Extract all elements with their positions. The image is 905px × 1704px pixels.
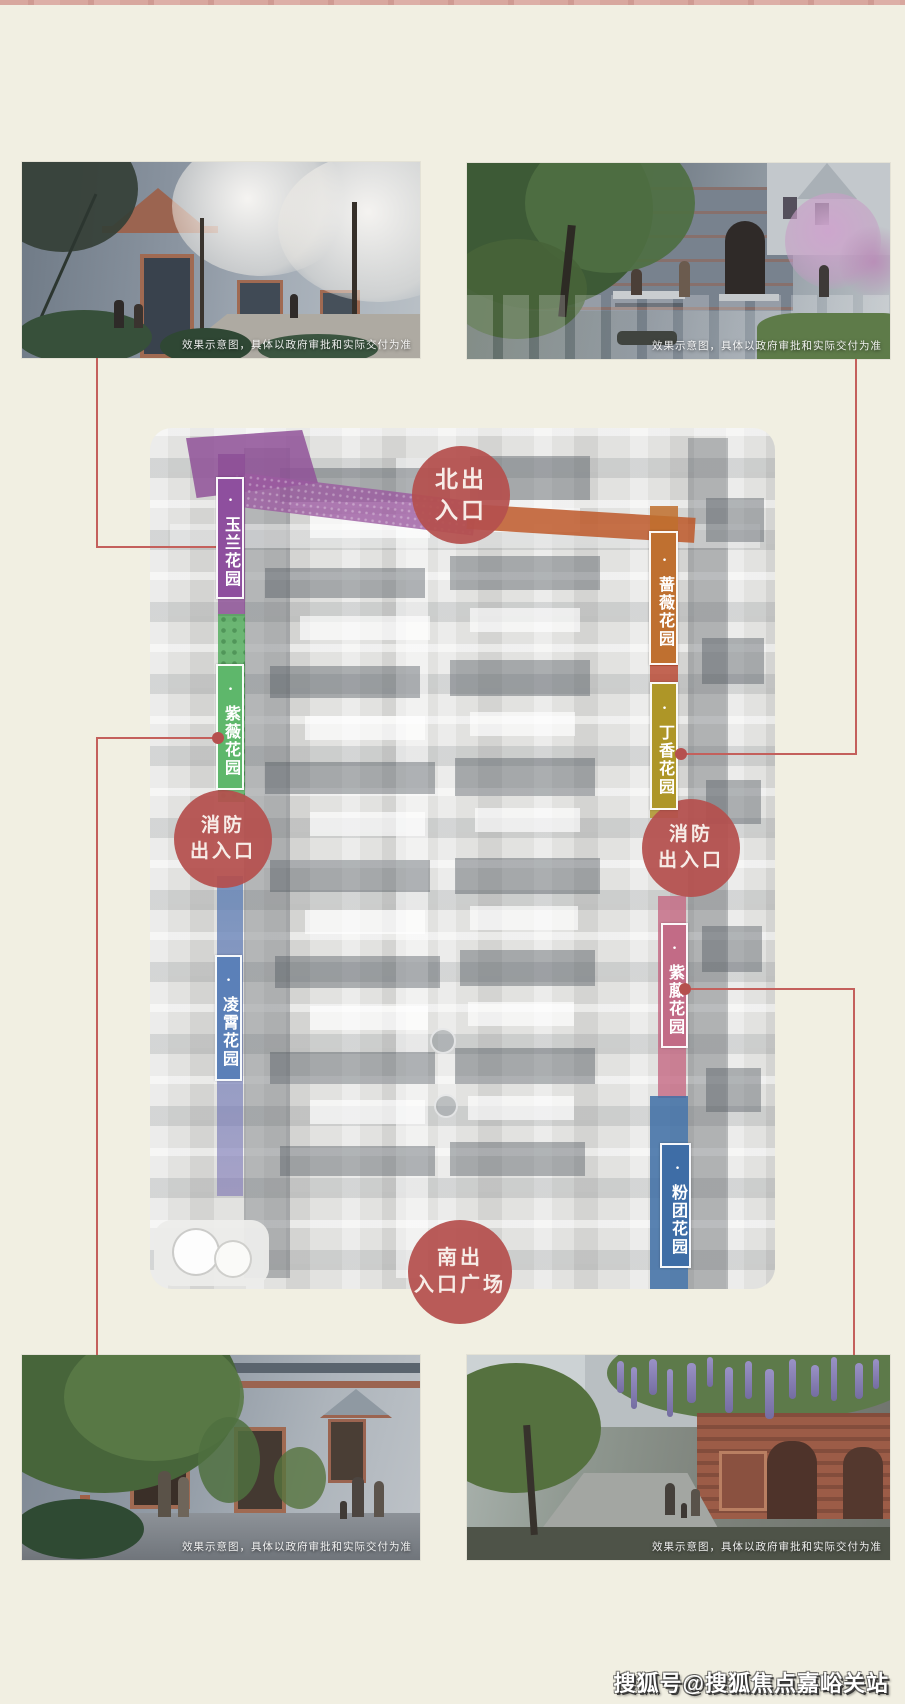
garden-name: 蔷薇花园 xyxy=(656,576,673,648)
map-texture-block xyxy=(468,1096,574,1120)
map-texture-block xyxy=(450,660,590,696)
watermark: 搜狐号@搜狐焦点嘉峪关站 xyxy=(614,1666,889,1698)
entrance-label-line: 出入口 xyxy=(190,839,256,865)
entrance-label-line: 消防 xyxy=(669,822,713,848)
tree-medallion-shape xyxy=(430,1028,456,1054)
entrance-label-line: 入口广场 xyxy=(414,1272,506,1299)
photo-caption: 效果示意图，具体以政府审批和实际交付为准 xyxy=(652,1539,882,1554)
map-texture-block xyxy=(455,858,600,894)
tree-medallion-shape xyxy=(434,1094,458,1118)
garden-bullet: · xyxy=(656,700,673,719)
person-silhouette xyxy=(819,265,829,297)
connector-line xyxy=(689,988,855,990)
wisteria-raceme-shape xyxy=(855,1363,863,1399)
top-decorative-strip xyxy=(0,0,905,5)
garden-landscape-shape xyxy=(214,1240,252,1278)
wisteria-raceme-shape xyxy=(765,1369,774,1419)
garden-label-dingxiang: ·丁香花园 xyxy=(650,682,678,810)
garden-name: 丁香花园 xyxy=(656,724,673,796)
map-texture-block xyxy=(270,860,430,892)
garden-bullet: · xyxy=(222,681,239,700)
connector-line xyxy=(853,988,855,1355)
page: 效果示意图，具体以政府审批和实际交付为准 效果示意图，具体以政府审批和实际交付为… xyxy=(0,0,905,1704)
map-texture-block xyxy=(265,568,425,598)
map-texture-block xyxy=(702,638,764,684)
person-silhouette xyxy=(374,1481,384,1517)
garden-name: 粉团花园 xyxy=(669,1184,686,1256)
map-texture-block xyxy=(310,1006,428,1030)
garden-label-qiangwei: ·蔷薇花园 xyxy=(649,531,678,665)
map-texture-block xyxy=(450,556,600,590)
garden-label-ziwei: ·紫薇花园 xyxy=(216,664,244,790)
person-silhouette xyxy=(114,300,124,328)
connector-line xyxy=(96,358,98,548)
map-texture-block xyxy=(702,926,762,972)
map-texture-block xyxy=(455,1048,595,1084)
person-silhouette xyxy=(290,294,298,318)
fire-exit-right-circle: 消防 出入口 xyxy=(642,799,740,897)
person-silhouette xyxy=(631,269,642,295)
map-texture-block xyxy=(470,608,580,632)
person-silhouette xyxy=(134,304,143,328)
map-texture-block xyxy=(455,758,595,796)
wisteria-raceme-shape xyxy=(831,1357,837,1401)
map-texture-block xyxy=(468,1002,574,1026)
person-silhouette xyxy=(665,1483,675,1515)
ivy-shape xyxy=(198,1417,260,1503)
entrance-north-circle: 北出 入口 xyxy=(412,446,510,544)
connector-dot xyxy=(675,748,687,760)
photo-caption: 效果示意图，具体以政府审批和实际交付为准 xyxy=(182,337,412,352)
garden-label-yulan: ·玉兰花园 xyxy=(216,477,244,599)
connector-line xyxy=(96,546,222,548)
map-texture-block xyxy=(460,950,595,986)
map-texture-block xyxy=(310,1100,425,1124)
map-texture-block xyxy=(265,762,435,794)
connector-line xyxy=(96,737,214,739)
person-silhouette xyxy=(691,1489,700,1516)
map-texture-block xyxy=(275,956,440,988)
person-silhouette xyxy=(340,1501,347,1519)
tree-trunk-shape xyxy=(200,218,204,330)
wisteria-raceme-shape xyxy=(811,1365,819,1397)
garden-name: 紫藤花园 xyxy=(666,964,683,1036)
garden-bullet: · xyxy=(656,552,673,571)
map-texture-block xyxy=(270,1052,435,1084)
bench-shape xyxy=(613,291,685,299)
photo-caption: 效果示意图，具体以政府审批和实际交付为准 xyxy=(652,338,882,353)
garden-bullet: · xyxy=(220,972,237,991)
wisteria-raceme-shape xyxy=(649,1359,657,1395)
shuttered-window-shape xyxy=(328,1419,366,1483)
map-texture-block xyxy=(706,1068,761,1112)
photo-bottom-right: 效果示意图，具体以政府审批和实际交付为准 xyxy=(467,1355,890,1560)
entrance-label-line: 消防 xyxy=(201,813,245,839)
map-texture-block xyxy=(470,712,575,736)
wisteria-raceme-shape xyxy=(873,1359,879,1389)
map-texture-block xyxy=(280,1146,435,1176)
garden-label-lingxiao: ·凌霄花园 xyxy=(215,955,242,1081)
connector-dot xyxy=(679,983,691,995)
photo-top-right: 效果示意图，具体以政府审批和实际交付为准 xyxy=(467,163,890,359)
connector-line xyxy=(685,753,857,755)
map-texture-block xyxy=(475,808,580,832)
entrance-label-line: 南出 xyxy=(437,1245,483,1272)
entrance-south-circle: 南出 入口广场 xyxy=(408,1220,512,1324)
wisteria-raceme-shape xyxy=(725,1367,733,1413)
brick-band-shape xyxy=(227,1381,420,1388)
photo-caption: 效果示意图，具体以政府审批和实际交付为准 xyxy=(182,1539,412,1554)
map-texture-block xyxy=(706,498,764,542)
shrub-shape xyxy=(22,310,152,358)
entrance-label-line: 出入口 xyxy=(658,848,724,874)
map-texture-block xyxy=(450,1142,585,1176)
person-silhouette xyxy=(679,261,690,297)
person-silhouette xyxy=(352,1477,364,1517)
bench-shape xyxy=(719,294,779,301)
wisteria-raceme-shape xyxy=(789,1359,796,1399)
wisteria-raceme-shape xyxy=(631,1367,637,1409)
map-texture-block xyxy=(470,906,578,930)
garden-bullet: · xyxy=(666,940,683,959)
entrance-label-line: 入口 xyxy=(435,495,487,526)
garden-name: 紫薇花园 xyxy=(222,705,239,777)
map-texture-block xyxy=(305,716,425,740)
entrance-label-line: 北出 xyxy=(435,464,487,495)
connector-dot xyxy=(212,732,224,744)
garden-label-fentuan: ·粉团花园 xyxy=(660,1143,691,1268)
blossom-tree-shape xyxy=(278,162,420,302)
map-texture-block xyxy=(270,666,420,698)
dark-tree-canopy-shape xyxy=(22,162,138,252)
pediment-shape xyxy=(320,1389,392,1418)
wisteria-raceme-shape xyxy=(687,1363,696,1403)
fire-exit-left-circle: 消防 出入口 xyxy=(174,790,272,888)
connector-line xyxy=(96,737,98,1355)
map-texture-block xyxy=(300,616,430,640)
photo-bottom-left: 效果示意图，具体以政府审批和实际交付为准 xyxy=(22,1355,420,1560)
person-silhouette xyxy=(178,1477,189,1517)
connector-line xyxy=(855,359,857,755)
person-silhouette xyxy=(681,1503,687,1518)
garden-landscape-shape xyxy=(172,1228,220,1276)
wisteria-raceme-shape xyxy=(707,1357,713,1387)
person-silhouette xyxy=(158,1471,171,1517)
garden-name: 玉兰花园 xyxy=(222,516,239,588)
wisteria-raceme-shape xyxy=(745,1361,752,1399)
garden-bullet: · xyxy=(222,492,239,511)
map-texture-block xyxy=(310,812,425,836)
garden-bullet: · xyxy=(669,1160,686,1179)
photo-top-left: 效果示意图，具体以政府审批和实际交付为准 xyxy=(22,162,420,358)
wisteria-raceme-shape xyxy=(617,1361,624,1393)
map-texture-block xyxy=(305,910,425,934)
wisteria-raceme-shape xyxy=(667,1369,673,1417)
arch-door-shape xyxy=(725,221,765,295)
garden-name: 凌霄花园 xyxy=(220,996,237,1068)
ivy-shape xyxy=(274,1447,326,1509)
